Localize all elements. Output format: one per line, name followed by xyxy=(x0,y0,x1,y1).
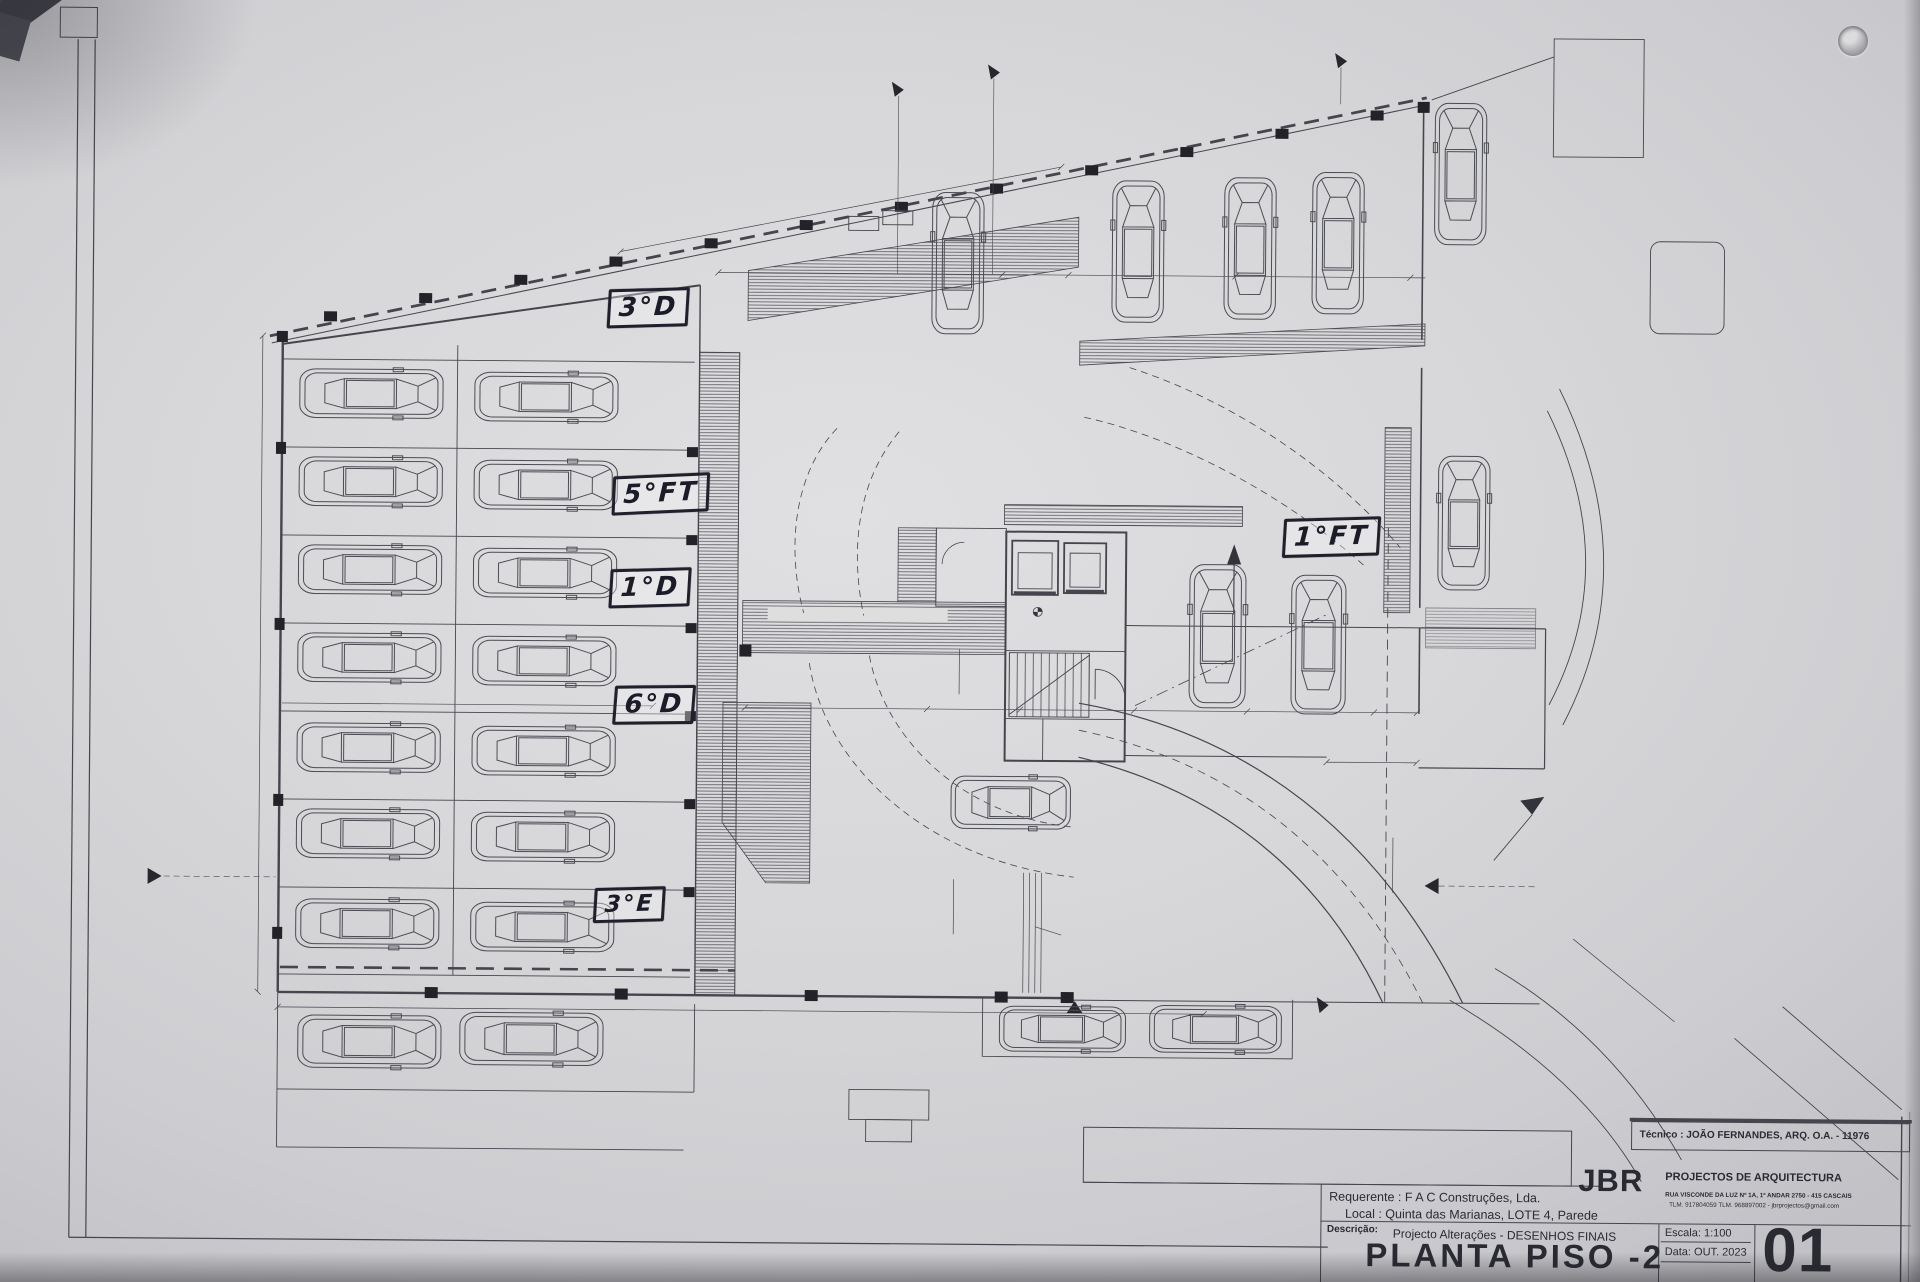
plan-linework xyxy=(0,0,1920,1282)
scale-label: Escala: 1:100 xyxy=(1665,1228,1732,1240)
descricao-label: Descrição: xyxy=(1327,1225,1378,1236)
photo-edge-shadow xyxy=(1904,0,1920,1282)
caminho-label-band xyxy=(768,607,948,622)
handwritten-unit-label: 1°FT xyxy=(1282,516,1381,558)
handwritten-unit-label: 3°E xyxy=(593,886,666,923)
photo-edge-shadow xyxy=(0,1252,1920,1282)
handwritten-unit-label: 6°D xyxy=(612,685,696,725)
tecnico-line: Técnico : JOÃO FERNANDES, ARQ. O.A. - 11… xyxy=(1640,1130,1870,1142)
columns xyxy=(272,93,1430,1006)
handwritten-unit-label: 1°D xyxy=(608,567,691,608)
drawing-sheet: ZONA TÉCNICA 35.32 9.60 0.10 5.65 0.10 5… xyxy=(0,0,1920,1282)
handwritten-unit-label: 3°D xyxy=(607,287,690,328)
parking-grid xyxy=(278,282,741,996)
firm-name: PROJECTOS DE ARQUITECTURA xyxy=(1665,1172,1842,1185)
local-line: Local : Quinta das Marianas, LOTE 4, Par… xyxy=(1345,1208,1598,1223)
ramp-curves xyxy=(1023,703,1465,1003)
cars xyxy=(295,94,1495,1078)
requerente-line: Requerente : F A C Construções, Lda. xyxy=(1329,1191,1540,1206)
firm-logo: JBR xyxy=(1578,1165,1643,1198)
photo-vignette xyxy=(0,0,260,190)
firm-contacts: TLM. 917804059 TLM. 968897002 - jbrproje… xyxy=(1669,1203,1839,1211)
handwritten-unit-label: 5°FT xyxy=(612,472,710,515)
photo-of-architectural-drawing: ZONA TÉCNICA 35.32 9.60 0.10 5.65 0.10 5… xyxy=(0,0,1920,1282)
punch-hole xyxy=(1838,26,1868,56)
